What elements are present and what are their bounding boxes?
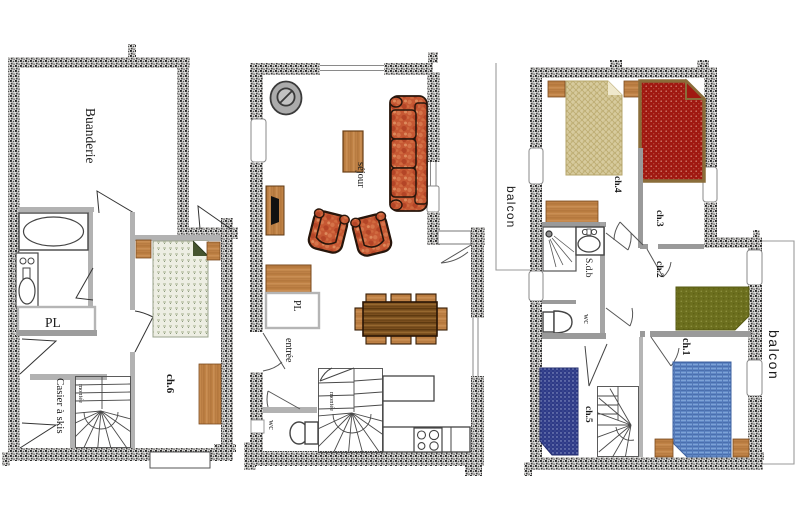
svg-text:séjour: séjour — [355, 162, 366, 188]
svg-text:ch.2: ch.2 — [654, 261, 664, 278]
svg-text:ch.3: ch.3 — [654, 210, 664, 227]
svg-text:montée: montée — [77, 384, 84, 403]
svg-text:PL: PL — [45, 315, 61, 330]
svg-text:ch.6: ch.6 — [164, 374, 176, 394]
svg-text:ch.1: ch.1 — [680, 338, 691, 356]
svg-text:montée: montée — [328, 392, 335, 411]
svg-text:PL: PL — [291, 300, 302, 312]
svg-text:ch.4: ch.4 — [612, 176, 622, 193]
svg-text:wc: wc — [267, 420, 277, 430]
svg-text:balcon: balcon — [766, 330, 782, 380]
svg-text:S.d.b: S.d.b — [583, 258, 593, 278]
svg-text:ch.5: ch.5 — [583, 406, 593, 423]
svg-text:balcon: balcon — [504, 186, 518, 229]
svg-text:entrée: entrée — [283, 338, 294, 363]
svg-text:Buanderie: Buanderie — [83, 108, 98, 163]
svg-text:wc: wc — [582, 314, 592, 324]
